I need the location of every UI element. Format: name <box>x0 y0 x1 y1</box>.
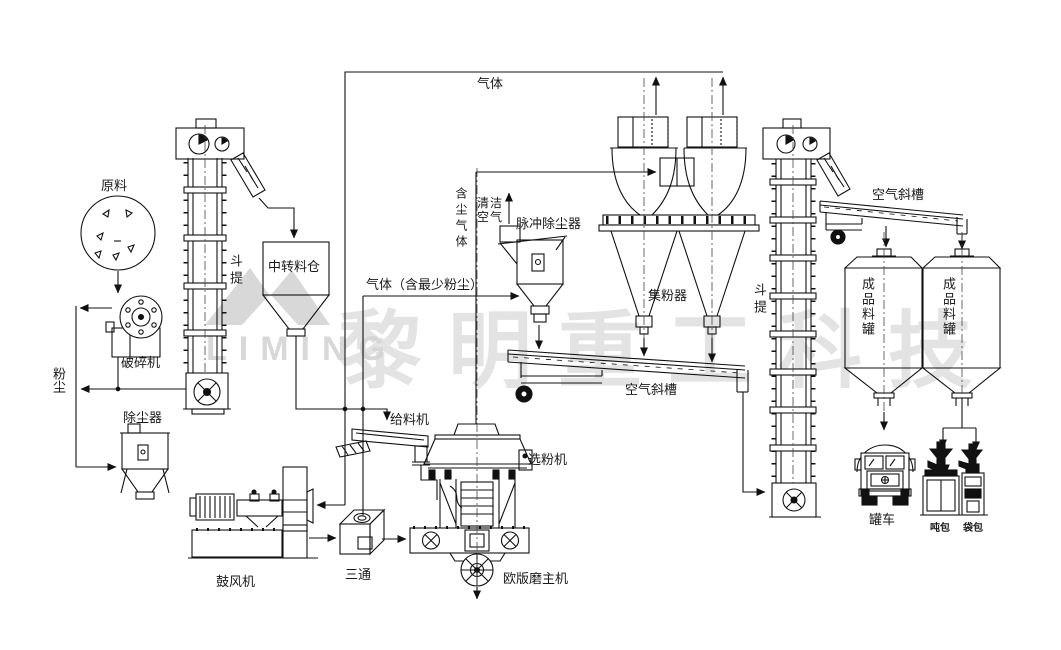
cyclone-powder-collector-icon <box>599 78 759 362</box>
tee-duct-icon <box>309 510 406 554</box>
flow-silo-to-feeder <box>296 336 387 420</box>
watermark-logo-icon <box>205 268 330 325</box>
mill-main-icon <box>410 168 529 599</box>
air-chute-right-icon <box>820 201 967 249</box>
jaw-crusher-icon <box>106 296 162 357</box>
bucket-elevator-right-icon <box>763 119 850 517</box>
product-silo-left-icon <box>845 232 922 430</box>
air-chute-center-icon <box>508 350 765 492</box>
mill-classifier-icon <box>424 424 532 528</box>
bucket-elevator-left-icon <box>176 119 265 414</box>
dusty-gas-duct <box>476 172 656 424</box>
pulse-dust-collector-icon <box>498 193 567 349</box>
gas-header-lines <box>317 72 723 515</box>
tank-truck-icon <box>855 445 915 505</box>
raw-material-pile-icon <box>81 196 155 270</box>
product-silo-right-icon <box>923 232 1000 450</box>
flow-elevator-to-silo <box>259 198 294 238</box>
diagram-line-art <box>0 0 1061 650</box>
dust-collector-icon <box>120 424 170 499</box>
bag-packer-icon <box>958 444 988 515</box>
blower-icon <box>188 467 318 558</box>
feeder-icon <box>336 429 437 500</box>
process-flow-diagram: 黎明重工科技 LIMING <box>0 0 1061 650</box>
ton-bag-packer-icon <box>920 442 962 515</box>
